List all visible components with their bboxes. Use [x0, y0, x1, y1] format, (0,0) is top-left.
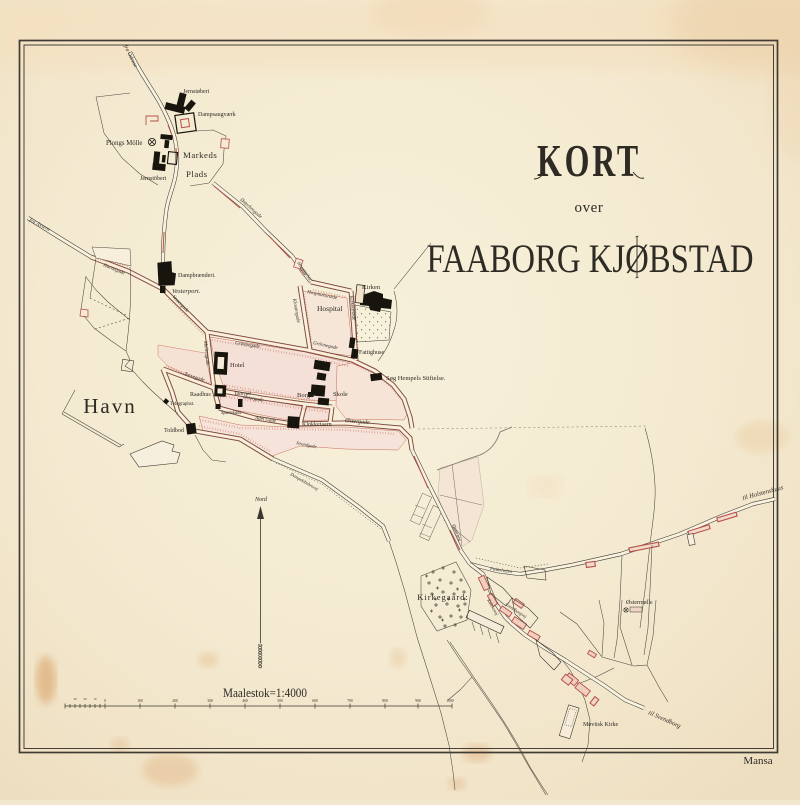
svg-text:800: 800 — [382, 699, 388, 703]
svg-text:FAABORG KJØBSTAD: FAABORG KJØBSTAD — [427, 236, 754, 281]
svg-text:1000: 1000 — [446, 699, 453, 703]
svg-text:KORT: KORT — [537, 135, 641, 186]
svg-text:Kirken: Kirken — [362, 284, 381, 291]
svg-text:Møviisk Kirke: Møviisk Kirke — [583, 722, 619, 728]
svg-text:900: 900 — [415, 699, 421, 703]
svg-text:600: 600 — [312, 699, 318, 703]
svg-text:Plongs Mölle: Plongs Mölle — [106, 140, 142, 147]
svg-text:Markeds: Markeds — [183, 150, 217, 160]
svg-text:Hospital: Hospital — [317, 304, 342, 313]
svg-text:Kirkegaard:: Kirkegaard: — [417, 592, 469, 602]
svg-text:Dampbrænderi.: Dampbrænderi. — [178, 273, 216, 279]
svg-text:Skole: Skole — [333, 391, 348, 398]
svg-text:Plads: Plads — [186, 169, 208, 179]
svg-text:Havn: Havn — [83, 394, 137, 418]
svg-text:Vesterport.: Vesterport. — [172, 288, 201, 295]
svg-text:500: 500 — [277, 699, 283, 703]
svg-text:Klokketaarn: Klokketaarn — [302, 422, 332, 428]
svg-text:Østermølle: Østermølle — [626, 600, 653, 606]
svg-text:Borger: Borger — [297, 392, 316, 399]
svg-text:Raadhus: Raadhus — [190, 392, 211, 398]
svg-text:0: 0 — [104, 699, 106, 703]
svg-text:Toldbod: Toldbod — [164, 428, 184, 434]
svg-text:Sparekass: Sparekass — [221, 411, 241, 416]
svg-text:Dampsaugværk: Dampsaugværk — [198, 112, 236, 118]
svg-text:Jernstøberi: Jernstøberi — [183, 89, 210, 95]
svg-text:400: 400 — [242, 699, 248, 703]
svg-text:Hotel: Hotel — [230, 362, 245, 369]
svg-text:Fattighuse: Fattighuse — [359, 350, 384, 356]
svg-text:Søg Hempels Stiftelse.: Søg Hempels Stiftelse. — [386, 375, 446, 382]
svg-text:over: over — [574, 200, 603, 216]
svg-text:200: 200 — [172, 699, 178, 703]
svg-text:Jernstöberi: Jernstöberi — [140, 176, 167, 182]
svg-text:Nord: Nord — [254, 497, 268, 503]
svg-text:Maalestok=1:4000: Maalestok=1:4000 — [223, 685, 307, 700]
svg-text:Telegraphst.: Telegraphst. — [170, 402, 195, 407]
svg-text:700: 700 — [347, 699, 353, 703]
svg-text:300: 300 — [207, 699, 213, 703]
svg-text:Mansa: Mansa — [743, 755, 772, 767]
svg-text:100: 100 — [137, 699, 143, 703]
